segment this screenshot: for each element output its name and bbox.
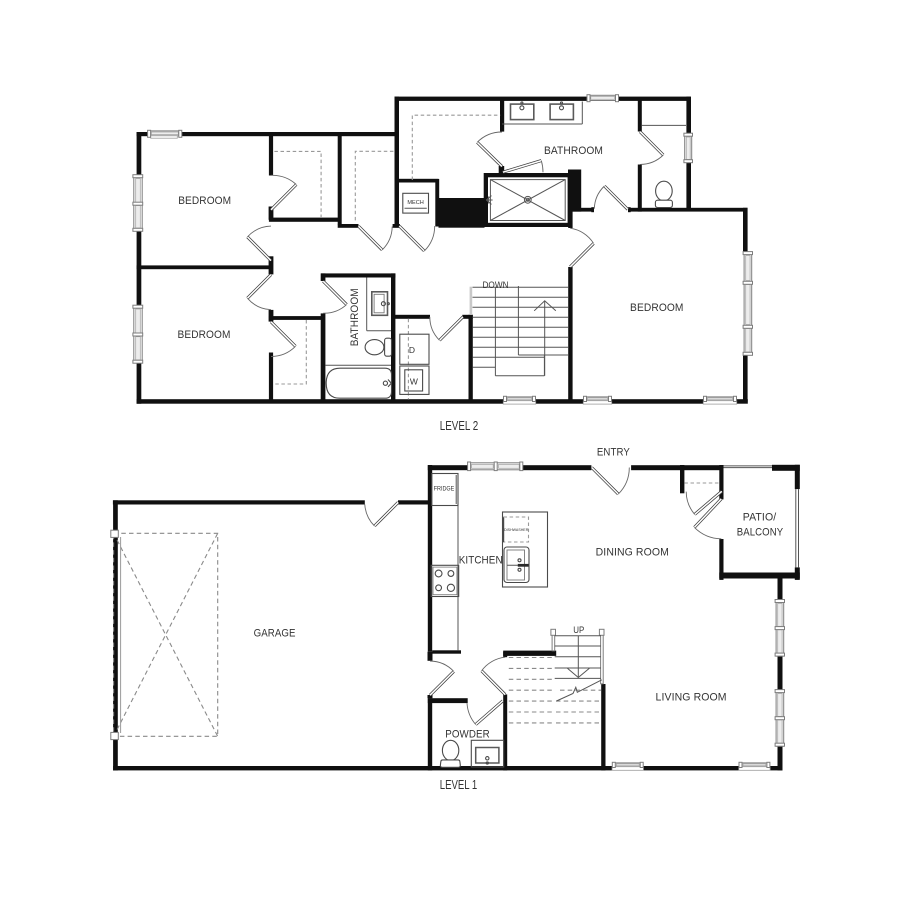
svg-text:BALCONY: BALCONY xyxy=(737,526,784,538)
svg-text:LIVING ROOM: LIVING ROOM xyxy=(656,692,727,704)
svg-text:BEDROOM: BEDROOM xyxy=(178,329,231,341)
svg-text:LEVEL 2: LEVEL 2 xyxy=(440,419,479,433)
svg-text:ENTRY: ENTRY xyxy=(597,447,630,459)
svg-text:GARAGE: GARAGE xyxy=(254,628,296,640)
svg-text:LEVEL 1: LEVEL 1 xyxy=(440,778,478,792)
svg-text:DINING ROOM: DINING ROOM xyxy=(596,547,669,559)
svg-text:D: D xyxy=(409,345,415,355)
svg-text:W: W xyxy=(410,376,418,386)
svg-text:PATIO/: PATIO/ xyxy=(743,512,777,524)
svg-text:UP: UP xyxy=(573,625,584,636)
svg-text:MECH: MECH xyxy=(407,200,423,206)
svg-text:DISHWASHER: DISHWASHER xyxy=(504,528,529,532)
svg-text:BEDROOM: BEDROOM xyxy=(178,195,231,207)
svg-text:DOWN: DOWN xyxy=(483,280,509,291)
svg-text:POWDER: POWDER xyxy=(445,729,490,741)
svg-text:BEDROOM: BEDROOM xyxy=(630,302,684,314)
svg-text:FRIDGE: FRIDGE xyxy=(434,486,455,493)
svg-text:KITCHEN: KITCHEN xyxy=(459,554,503,566)
svg-text:BATHROOM: BATHROOM xyxy=(544,145,603,157)
svg-text:BATHROOM: BATHROOM xyxy=(349,288,361,346)
